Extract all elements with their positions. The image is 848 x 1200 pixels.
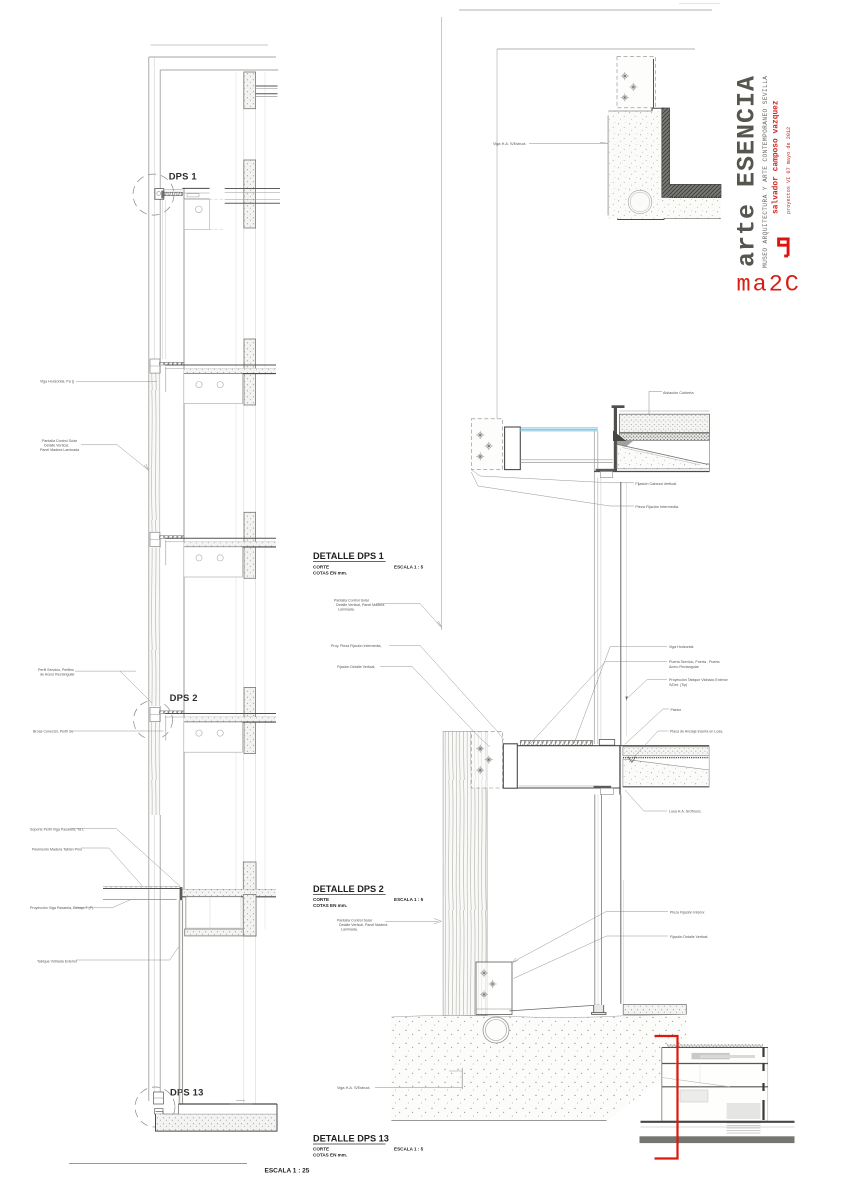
svg-text:Viga Horizontal, Pa (): Viga Horizontal, Pa ()	[40, 380, 74, 384]
svg-text:Aislación Cubierta: Aislación Cubierta	[663, 391, 694, 395]
svg-text:Panel Madera Laminada: Panel Madera Laminada	[40, 448, 79, 452]
svg-text:Pavimento Madera Tablón Pino: Pavimento Madera Tablón Pino	[32, 848, 82, 852]
svg-text:CORTE: CORTE	[313, 1147, 329, 1152]
svg-text:Fijación Detalle Vertical,: Fijación Detalle Vertical,	[337, 665, 375, 669]
svg-text:DETALLE DPS 1: DETALLE DPS 1	[313, 551, 384, 561]
svg-text:DETALLE DPS 2: DETALLE DPS 2	[313, 884, 384, 894]
svg-text:de Acero Rectangular: de Acero Rectangular	[40, 673, 75, 677]
svg-text:Laminada.: Laminada.	[338, 608, 355, 612]
svg-text:MUSEO ARQUITECTURA Y ARTE CONT: MUSEO ARQUITECTURA Y ARTE CONTEMPORANEO …	[762, 76, 769, 268]
svg-text:Perfil Servicio, Perfiles: Perfil Servicio, Perfiles	[38, 668, 74, 672]
svg-text:Pieza Fijación Intermedia.: Pieza Fijación Intermedia.	[635, 505, 679, 509]
svg-text:DPS 13: DPS 13	[170, 1087, 204, 1098]
svg-text:DPS 2: DPS 2	[170, 692, 198, 703]
svg-text:Acero Rectangular: Acero Rectangular	[669, 665, 700, 669]
svg-text:Fijación Cabeza Vertical.: Fijación Cabeza Vertical.	[635, 482, 677, 486]
svg-text:ESCALA 1 : 5: ESCALA 1 : 5	[394, 897, 424, 902]
svg-text:Viga H.A. S/Estruct.: Viga H.A. S/Estruct.	[493, 142, 526, 146]
svg-text:Detalle Vertical, Panel Madera: Detalle Vertical, Panel Madera	[339, 923, 387, 927]
svg-text:Pantalla Control Solar: Pantalla Control Solar	[42, 439, 78, 443]
svg-text:Broas Conector, Perfil Se: Broas Conector, Perfil Se	[33, 730, 73, 734]
svg-text:DPS 1: DPS 1	[169, 171, 197, 182]
svg-text:salvador camposo vazquez: salvador camposo vazquez	[772, 100, 781, 214]
svg-text:CORTE: CORTE	[313, 897, 329, 902]
svg-text:Laminada.: Laminada.	[341, 928, 358, 932]
svg-text:Detalle Vertical,: Detalle Vertical,	[44, 444, 69, 448]
svg-text:Puerta Servicio, Puerta , Pu: Puerta Servicio, Puerta , Puerta	[669, 660, 720, 664]
svg-text:Viga Horizontal.: Viga Horizontal.	[669, 645, 694, 649]
svg-text:proyectos VI 07 mayo de 2012: proyectos VI 07 mayo de 2012	[786, 127, 792, 214]
svg-text:Viga H.A. S/Estruct.: Viga H.A. S/Estruct.	[337, 1086, 370, 1090]
svg-text:Fijación Detalle Vertical.: Fijación Detalle Vertical.	[670, 935, 708, 939]
svg-text:COTAS EN mm.: COTAS EN mm.	[313, 1153, 347, 1158]
svg-text:Soporte Perfil Viga Pasarela,: Soporte Perfil Viga Pasarela, Ya L	[30, 828, 84, 832]
svg-text:Tabique Vidriada Exterior: Tabique Vidriada Exterior	[37, 960, 78, 964]
svg-text:ESCALA 1 : 25: ESCALA 1 : 25	[265, 1168, 310, 1175]
svg-text:Pantalla Control Solar: Pantalla Control Solar	[337, 919, 373, 923]
svg-text:Placa de Anclaje inserta en Lo: Placa de Anclaje inserta en Losa,	[670, 730, 723, 734]
svg-text:DETALLE DPS 13: DETALLE DPS 13	[313, 1134, 389, 1144]
svg-text:ESCALA 1 : 5: ESCALA 1 : 5	[394, 1147, 424, 1152]
svg-text:ESCALA 1 : 5: ESCALA 1 : 5	[394, 565, 424, 570]
svg-text:arte ESENCIA: arte ESENCIA	[733, 75, 762, 267]
svg-text:Pieza Fijación Inferior.: Pieza Fijación Inferior.	[670, 911, 705, 915]
svg-text:Losa H.A. S/Ofnunc.: Losa H.A. S/Ofnunc.	[669, 810, 702, 814]
svg-text:S/Det. (Tip): S/Det. (Tip)	[669, 683, 687, 687]
svg-text:COTAS EN mm.: COTAS EN mm.	[313, 571, 347, 576]
svg-text:CORTE: CORTE	[313, 565, 329, 570]
svg-text:Proyección Tabique Vidriado Ex: Proyección Tabique Vidriado Exterior	[669, 678, 729, 682]
svg-text:Proy. Pieza Fijación Intermedi: Proy. Pieza Fijación Intermedia,	[331, 644, 381, 648]
svg-text:Pastor: Pastor	[671, 708, 682, 712]
svg-text:ma2C: ma2C	[737, 272, 801, 299]
svg-text:Pantalla Control Solar: Pantalla Control Solar	[334, 599, 370, 603]
svg-text:COTAS EN mm.: COTAS EN mm.	[313, 903, 347, 908]
